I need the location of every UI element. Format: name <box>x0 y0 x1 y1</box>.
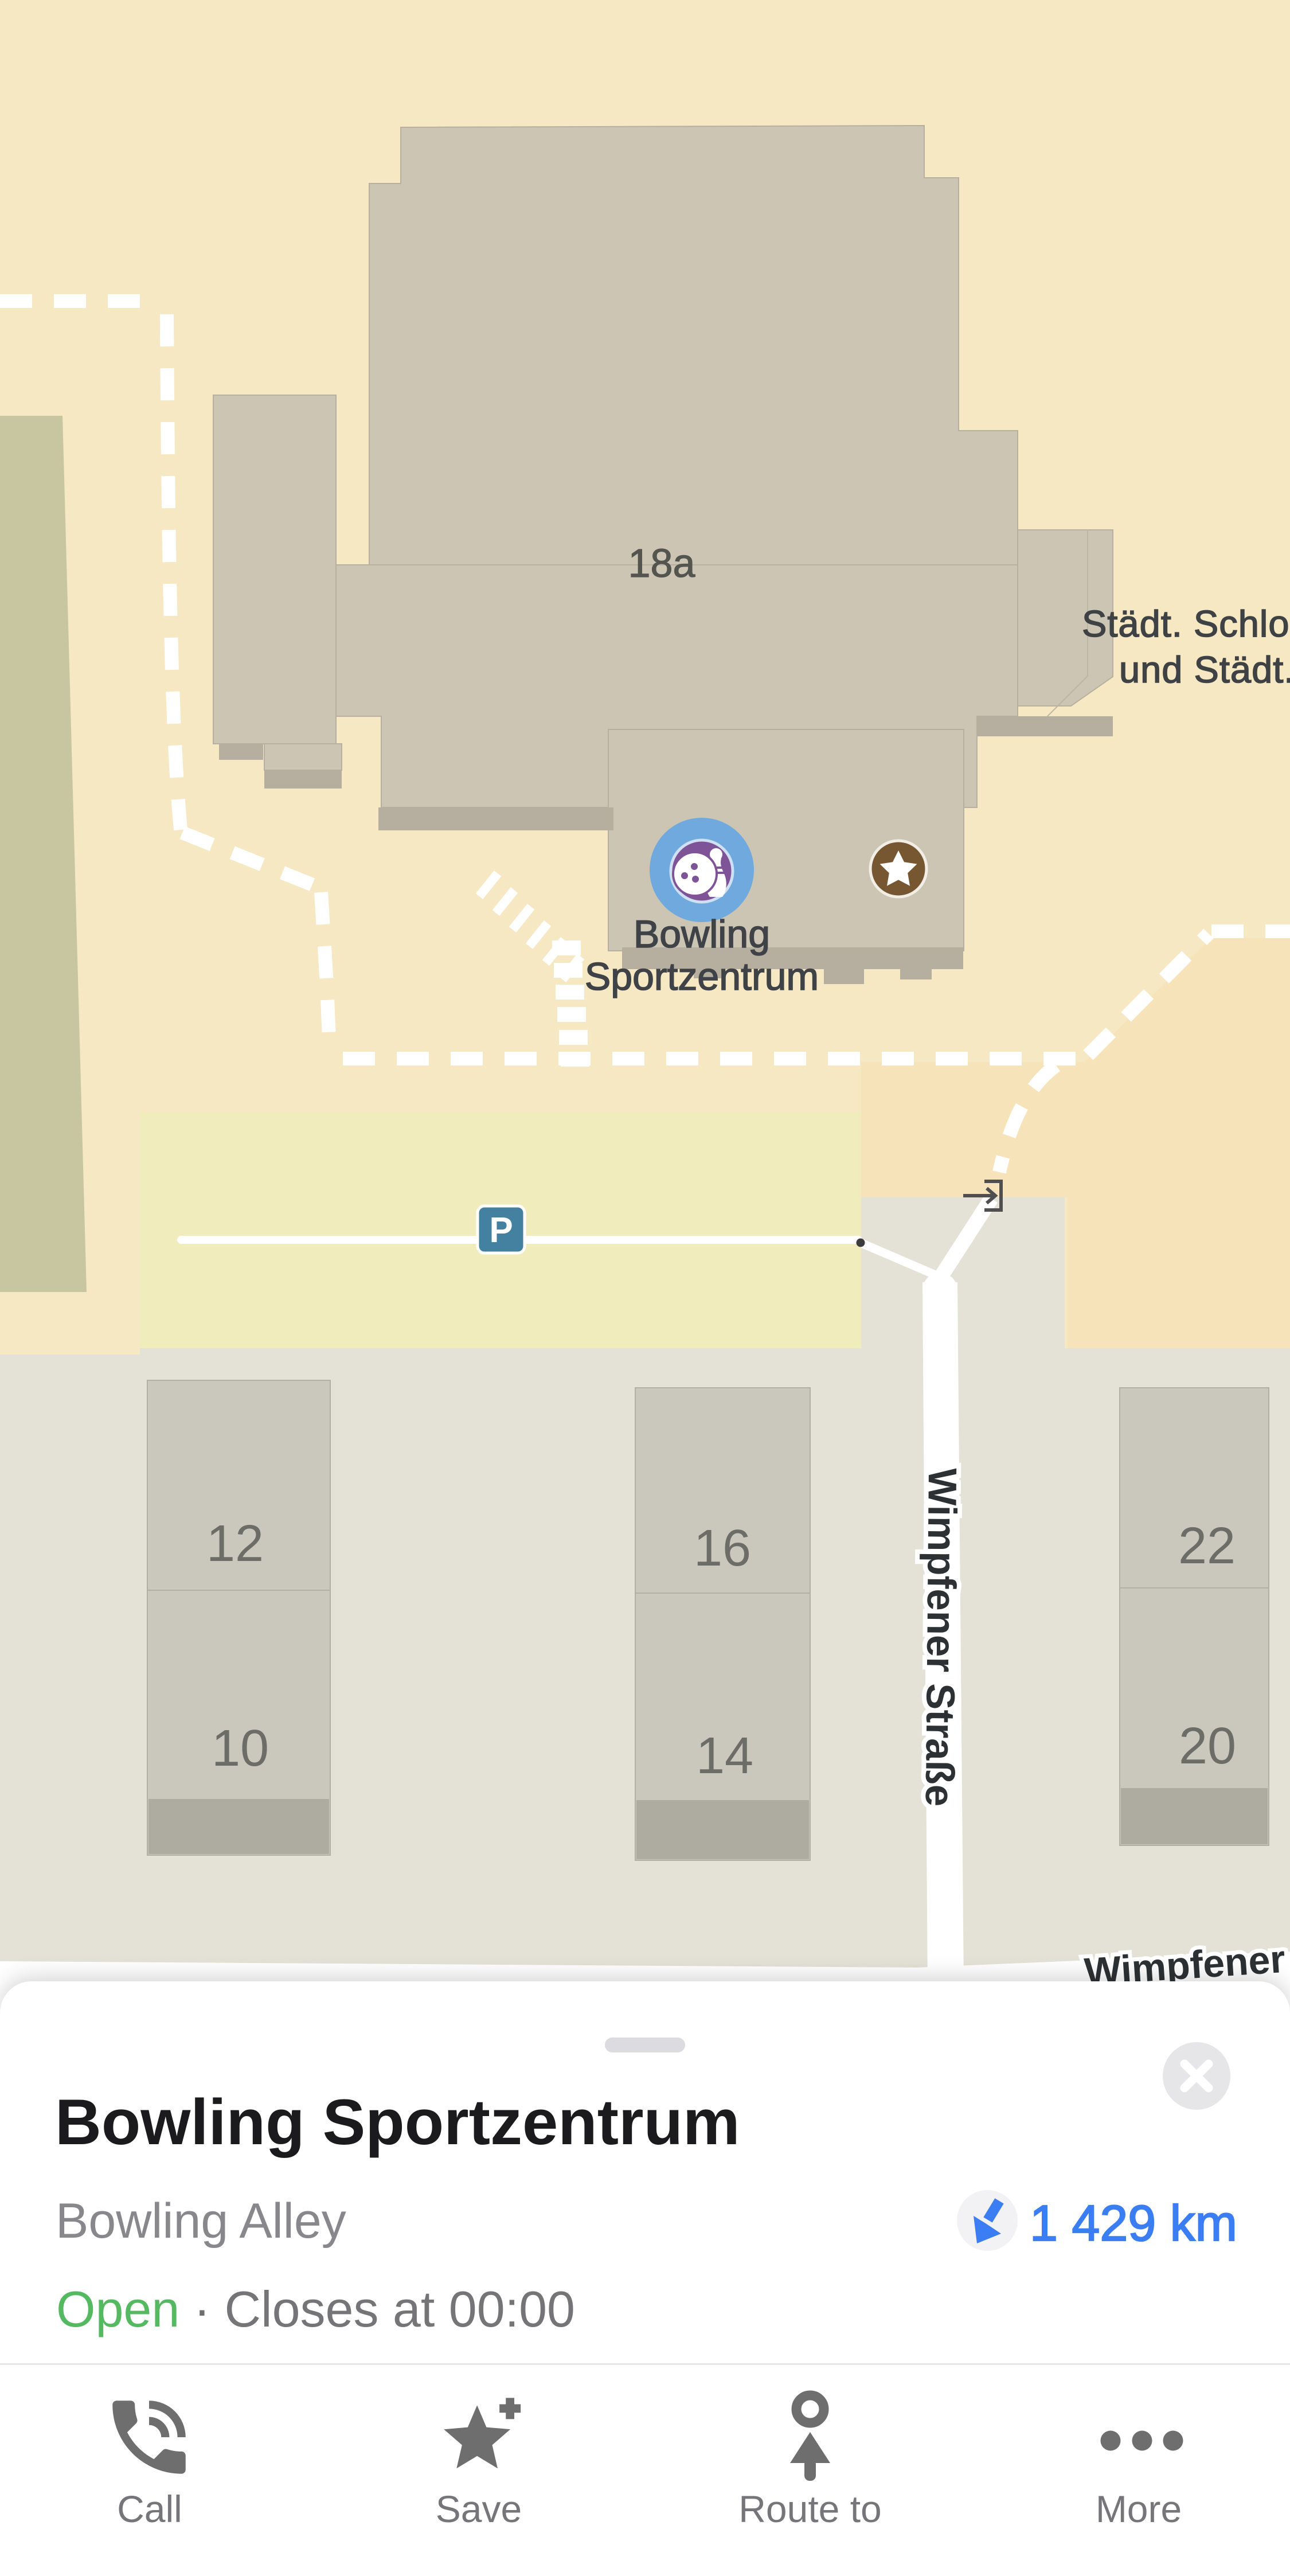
svg-text:22: 22 <box>1178 1517 1236 1575</box>
svg-text:Städt. Schlo: Städt. Schlo <box>1082 603 1290 645</box>
svg-text:P: P <box>489 1211 513 1250</box>
svg-text:18a: 18a <box>628 541 695 586</box>
svg-text:und Städt.: und Städt. <box>1119 649 1290 690</box>
svg-text:16: 16 <box>694 1520 751 1577</box>
svg-text:20: 20 <box>1179 1718 1236 1775</box>
svg-text:12: 12 <box>206 1515 264 1572</box>
svg-text:14: 14 <box>696 1727 753 1785</box>
svg-text:Wimpfener Straße: Wimpfener Straße <box>917 1468 965 1807</box>
svg-text:Bowling: Bowling <box>634 912 770 956</box>
svg-text:10: 10 <box>212 1720 269 1777</box>
svg-text:Sportzentrum: Sportzentrum <box>585 955 819 998</box>
